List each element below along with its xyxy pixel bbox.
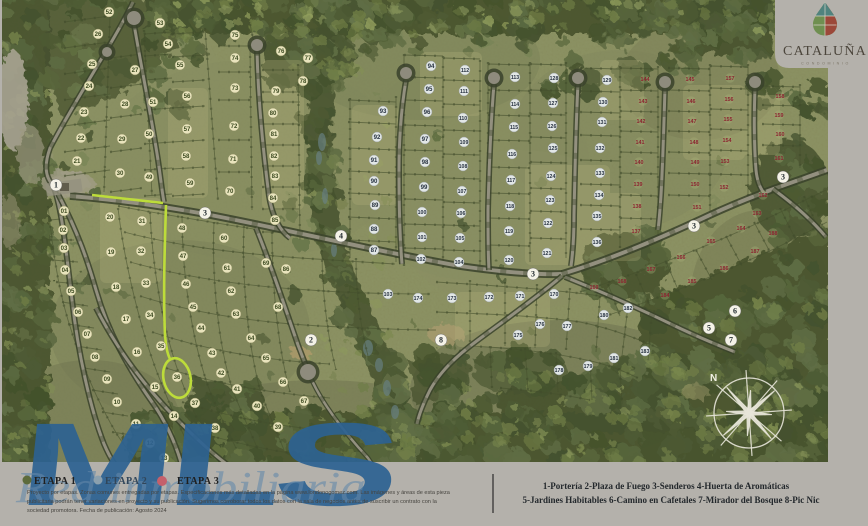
svg-text:120: 120 (505, 258, 514, 264)
svg-text:54: 54 (165, 41, 172, 48)
svg-text:49: 49 (146, 174, 153, 181)
svg-text:148: 148 (690, 140, 699, 146)
svg-text:08: 08 (92, 354, 99, 361)
svg-text:04: 04 (62, 267, 69, 274)
svg-text:48: 48 (179, 225, 186, 232)
svg-text:19: 19 (108, 249, 115, 256)
svg-text:7: 7 (729, 335, 733, 344)
svg-text:132: 132 (596, 146, 605, 152)
svg-text:44: 44 (198, 325, 205, 332)
svg-text:32: 32 (138, 248, 145, 255)
svg-text:03: 03 (61, 245, 68, 252)
svg-text:publicitaria podrán tener vari: publicitaria podrán tener variaciones en… (27, 499, 438, 505)
svg-text:145: 145 (686, 77, 695, 83)
svg-text:135: 135 (593, 214, 602, 220)
svg-text:147: 147 (688, 119, 697, 125)
svg-text:27: 27 (132, 67, 139, 74)
svg-text:87: 87 (371, 247, 378, 254)
svg-text:4: 4 (339, 231, 343, 240)
svg-text:140: 140 (635, 160, 644, 166)
svg-text:85: 85 (272, 217, 279, 224)
svg-text:73: 73 (232, 85, 239, 92)
svg-text:1: 1 (54, 180, 58, 189)
svg-text:07: 07 (84, 331, 91, 338)
svg-text:66: 66 (280, 379, 287, 386)
svg-text:176: 176 (536, 322, 545, 328)
svg-text:93: 93 (380, 108, 387, 115)
svg-text:36: 36 (174, 374, 181, 381)
svg-text:Proyecto por etapas. Zonas com: Proyecto por etapas. Zonas comunes entre… (27, 490, 451, 496)
svg-text:106: 106 (457, 211, 466, 217)
svg-text:ETAPA 2: ETAPA 2 (105, 476, 147, 487)
svg-text:125: 125 (549, 146, 558, 152)
svg-text:138: 138 (633, 204, 642, 210)
svg-text:42: 42 (218, 370, 225, 377)
svg-text:134: 134 (595, 193, 604, 199)
svg-text:112: 112 (461, 68, 469, 74)
svg-text:107: 107 (458, 189, 467, 195)
svg-text:33: 33 (143, 280, 150, 287)
svg-text:17: 17 (123, 316, 130, 323)
svg-text:184: 184 (661, 293, 670, 299)
svg-text:102: 102 (417, 257, 426, 263)
svg-text:161: 161 (775, 156, 784, 162)
svg-text:60: 60 (221, 235, 228, 242)
svg-text:123: 123 (546, 198, 555, 204)
svg-text:71: 71 (230, 156, 237, 163)
svg-text:142: 142 (637, 119, 646, 125)
svg-text:130: 130 (599, 100, 608, 106)
svg-text:105: 105 (456, 236, 465, 242)
svg-text:79: 79 (273, 88, 280, 95)
svg-text:110: 110 (459, 116, 467, 122)
svg-text:133: 133 (596, 171, 605, 177)
svg-text:188: 188 (769, 231, 778, 237)
svg-text:28: 28 (122, 101, 129, 108)
svg-text:149: 149 (691, 160, 700, 166)
svg-text:3: 3 (781, 172, 785, 181)
svg-text:82: 82 (271, 153, 278, 160)
svg-text:18: 18 (113, 284, 120, 291)
svg-text:05: 05 (68, 288, 75, 295)
svg-text:154: 154 (723, 138, 732, 144)
svg-text:06: 06 (75, 309, 82, 316)
svg-text:58: 58 (183, 153, 190, 160)
svg-text:80: 80 (270, 110, 277, 117)
svg-text:55: 55 (177, 62, 184, 69)
svg-text:113: 113 (511, 75, 519, 81)
svg-text:183: 183 (641, 349, 650, 355)
svg-text:63: 63 (233, 311, 240, 318)
svg-text:124: 124 (547, 174, 556, 180)
svg-text:16: 16 (134, 349, 141, 356)
svg-text:N: N (710, 373, 717, 384)
svg-text:164: 164 (737, 226, 746, 232)
svg-text:81: 81 (271, 131, 278, 138)
svg-text:3: 3 (692, 221, 696, 230)
svg-text:98: 98 (422, 159, 429, 166)
svg-text:99: 99 (421, 184, 428, 191)
svg-text:174: 174 (414, 296, 423, 302)
svg-text:41: 41 (234, 386, 241, 393)
svg-text:ETAPA 3: ETAPA 3 (177, 476, 219, 487)
svg-text:75: 75 (232, 32, 239, 39)
svg-text:88: 88 (371, 226, 378, 233)
svg-text:1-Portería 2-Plaza de Fuego 3-: 1-Portería 2-Plaza de Fuego 3-Senderos 4… (543, 481, 790, 491)
svg-text:76: 76 (278, 48, 285, 55)
svg-text:114: 114 (511, 102, 519, 108)
svg-text:92: 92 (374, 134, 381, 141)
svg-text:47: 47 (180, 253, 187, 260)
svg-text:100: 100 (418, 210, 427, 216)
svg-text:182: 182 (624, 306, 633, 312)
svg-text:74: 74 (232, 55, 239, 62)
svg-text:141: 141 (636, 140, 645, 146)
svg-text:31: 31 (139, 218, 146, 225)
svg-text:23: 23 (81, 109, 88, 116)
svg-text:127: 127 (549, 101, 558, 107)
svg-text:179: 179 (584, 364, 593, 370)
svg-text:158: 158 (776, 94, 785, 100)
svg-text:167: 167 (647, 267, 656, 273)
svg-text:65: 65 (263, 355, 270, 362)
svg-text:46: 46 (183, 281, 190, 288)
svg-text:95: 95 (426, 86, 433, 93)
svg-text:136: 136 (593, 240, 602, 246)
svg-text:144: 144 (641, 77, 650, 83)
svg-text:30: 30 (117, 170, 124, 177)
svg-text:94: 94 (428, 63, 435, 70)
svg-text:150: 150 (691, 182, 700, 188)
svg-text:139: 139 (634, 182, 643, 188)
svg-text:115: 115 (510, 125, 518, 131)
svg-text:sociedad promotora. Fecha de p: sociedad promotora. Fecha de publicación… (27, 508, 167, 514)
svg-text:64: 64 (248, 335, 255, 342)
svg-text:3: 3 (203, 208, 207, 217)
svg-text:53: 53 (157, 20, 164, 27)
svg-text:169: 169 (590, 285, 599, 291)
svg-text:77: 77 (305, 55, 312, 62)
svg-text:185: 185 (688, 279, 697, 285)
svg-text:89: 89 (372, 202, 379, 209)
svg-text:09: 09 (104, 376, 111, 383)
svg-text:170: 170 (550, 292, 559, 298)
svg-text:5: 5 (707, 323, 711, 332)
svg-text:171: 171 (516, 294, 525, 300)
svg-text:180: 180 (600, 313, 609, 319)
svg-text:CATALUÑA: CATALUÑA (783, 43, 867, 59)
svg-text:128: 128 (550, 76, 559, 82)
svg-text:24: 24 (86, 83, 93, 90)
svg-text:109: 109 (460, 140, 469, 146)
svg-text:173: 173 (448, 296, 457, 302)
svg-text:72: 72 (231, 123, 238, 130)
svg-text:104: 104 (455, 260, 464, 266)
svg-text:96: 96 (424, 109, 431, 116)
svg-text:43: 43 (209, 350, 216, 357)
svg-text:186: 186 (720, 266, 729, 272)
svg-text:21: 21 (74, 158, 81, 165)
svg-text:84: 84 (270, 195, 277, 202)
svg-text:ETAPA 1: ETAPA 1 (34, 476, 76, 487)
svg-text:22: 22 (78, 135, 85, 142)
svg-text:8: 8 (439, 335, 443, 344)
svg-text:166: 166 (677, 255, 686, 261)
svg-text:162: 162 (759, 193, 768, 199)
svg-text:151: 151 (693, 205, 702, 211)
svg-text:25: 25 (89, 61, 96, 68)
svg-text:111: 111 (460, 89, 468, 95)
svg-text:181: 181 (610, 356, 619, 362)
svg-text:34: 34 (147, 312, 154, 319)
svg-text:97: 97 (422, 136, 429, 143)
svg-text:175: 175 (514, 333, 523, 339)
svg-text:126: 126 (548, 124, 557, 130)
svg-text:129: 129 (603, 78, 612, 84)
svg-text:02: 02 (60, 227, 67, 234)
svg-text:152: 152 (720, 185, 729, 191)
svg-text:20: 20 (107, 214, 114, 221)
svg-text:137: 137 (632, 229, 641, 235)
svg-text:56: 56 (184, 93, 191, 100)
svg-text:165: 165 (707, 239, 716, 245)
svg-text:3: 3 (531, 269, 535, 278)
svg-text:2: 2 (309, 335, 313, 344)
svg-text:62: 62 (228, 288, 235, 295)
svg-text:103: 103 (384, 292, 393, 298)
svg-text:35: 35 (158, 343, 165, 350)
svg-text:172: 172 (485, 295, 494, 301)
svg-text:CONDOMINIO: CONDOMINIO (801, 62, 851, 66)
svg-text:178: 178 (555, 368, 564, 374)
svg-text:121: 121 (543, 251, 552, 257)
svg-text:177: 177 (563, 324, 572, 330)
svg-text:91: 91 (371, 157, 378, 164)
svg-text:168: 168 (618, 279, 627, 285)
svg-text:155: 155 (724, 117, 733, 123)
svg-text:57: 57 (184, 126, 191, 133)
svg-text:160: 160 (776, 132, 785, 138)
svg-text:51: 51 (150, 99, 157, 106)
svg-text:153: 153 (721, 159, 730, 165)
svg-text:116: 116 (508, 152, 516, 158)
svg-text:15: 15 (152, 384, 159, 391)
svg-text:45: 45 (190, 304, 197, 311)
svg-text:117: 117 (507, 178, 515, 184)
svg-text:5-Jardines Habitables 6-Camin: 5-Jardines Habitables 6-Camino en Cafeta… (522, 495, 819, 505)
svg-text:83: 83 (272, 173, 279, 180)
svg-text:68: 68 (275, 304, 282, 311)
svg-text:163: 163 (753, 211, 762, 217)
svg-text:146: 146 (687, 99, 696, 105)
svg-text:90: 90 (371, 178, 378, 185)
svg-text:01: 01 (61, 208, 68, 215)
svg-text:61: 61 (224, 265, 231, 272)
svg-text:26: 26 (95, 31, 102, 38)
svg-text:101: 101 (418, 235, 427, 241)
svg-text:122: 122 (544, 221, 553, 227)
svg-text:78: 78 (300, 78, 307, 85)
svg-text:86: 86 (283, 266, 290, 273)
svg-text:157: 157 (726, 76, 735, 82)
svg-text:187: 187 (751, 249, 760, 255)
svg-text:6: 6 (733, 306, 737, 315)
svg-text:118: 118 (506, 204, 514, 210)
svg-text:119: 119 (505, 229, 513, 235)
svg-text:69: 69 (263, 260, 270, 267)
svg-text:156: 156 (725, 97, 734, 103)
svg-text:29: 29 (119, 136, 126, 143)
svg-text:143: 143 (639, 99, 648, 105)
svg-text:59: 59 (187, 180, 194, 187)
svg-text:131: 131 (598, 120, 607, 126)
svg-text:70: 70 (227, 188, 234, 195)
svg-text:50: 50 (146, 131, 153, 138)
svg-text:108: 108 (459, 164, 468, 170)
svg-text:159: 159 (775, 113, 784, 119)
svg-text:52: 52 (106, 9, 113, 16)
